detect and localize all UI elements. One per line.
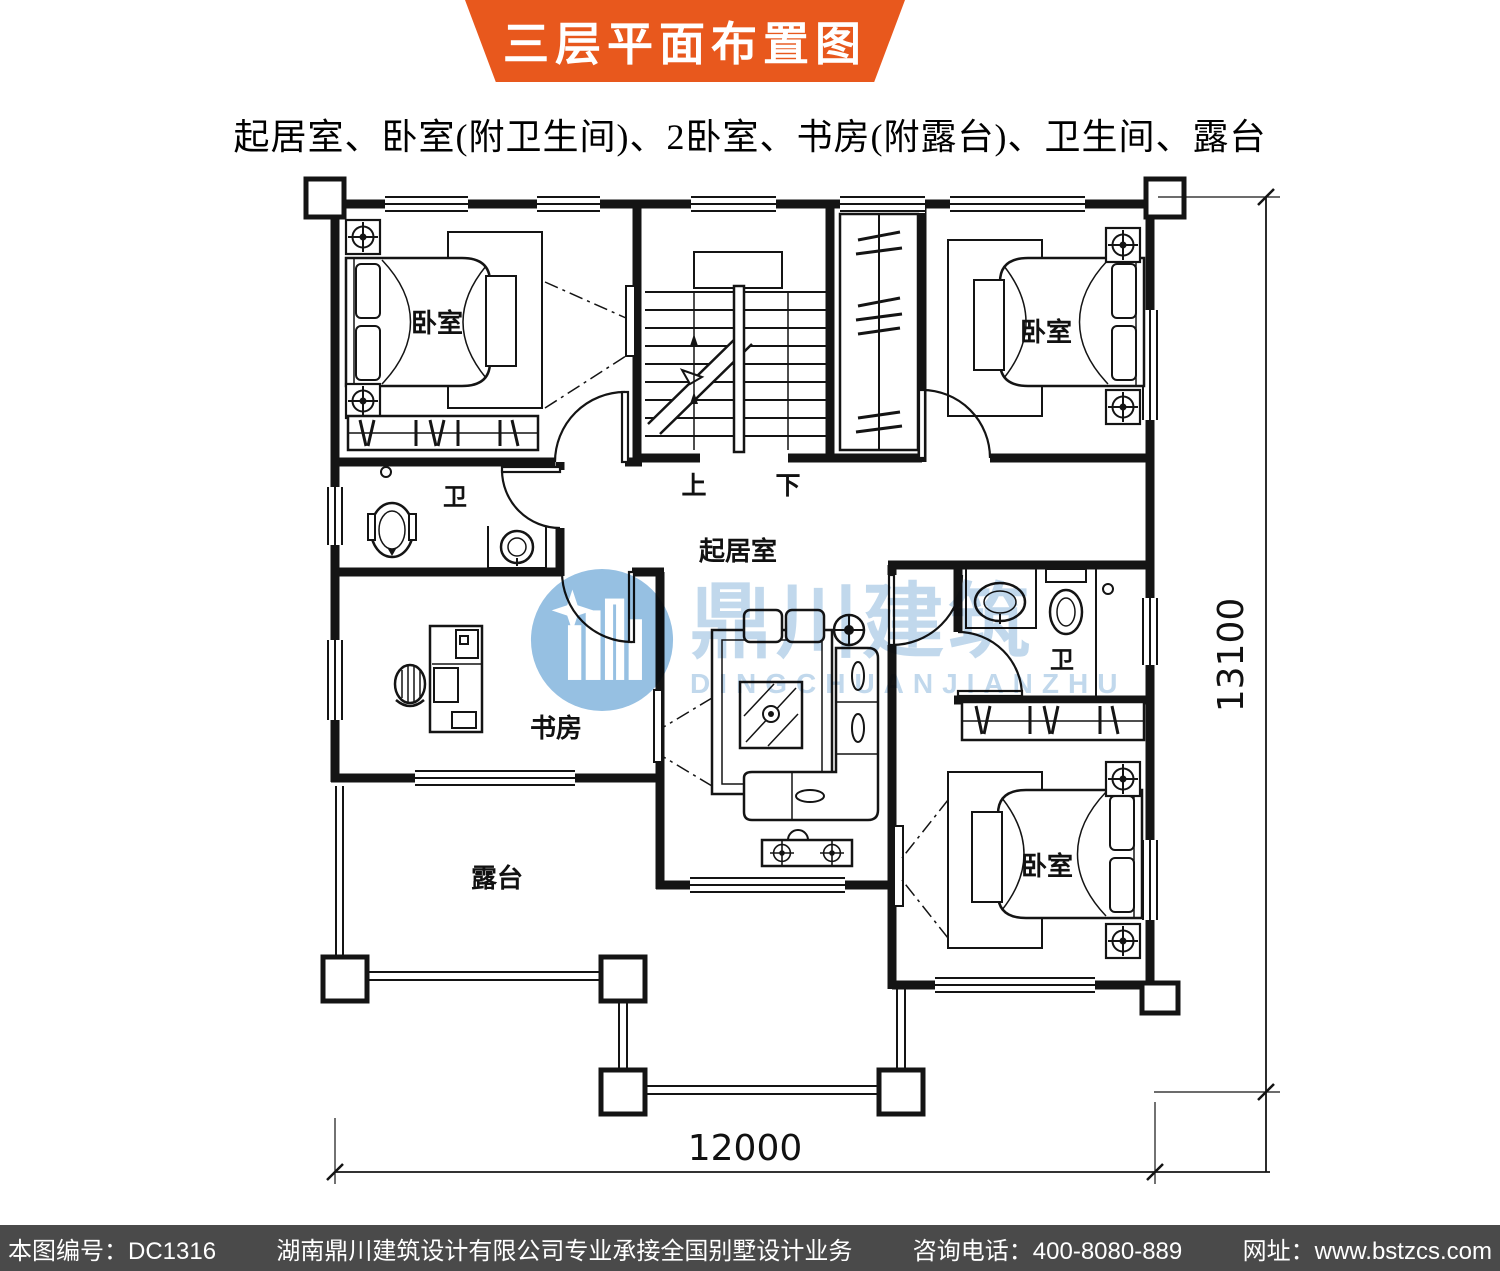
nightstand-icon (1106, 228, 1140, 262)
room-label-bath-right: 卫 (1050, 647, 1074, 674)
dimension-bottom: 12000 (327, 1102, 1270, 1184)
pillow-icon (1110, 858, 1134, 912)
ceiling-lamp-icon (1103, 584, 1113, 594)
nightstand-icon (346, 220, 380, 254)
nightstand-icon (346, 384, 380, 418)
staircase (645, 252, 829, 452)
plant-icon (834, 615, 864, 645)
stair-up-label: 上 (681, 472, 706, 500)
pillow-icon (356, 264, 380, 318)
tv-console-icon (762, 830, 852, 866)
pillow-icon (1112, 264, 1136, 318)
terrace-railing (323, 786, 923, 1114)
tv-icon (626, 286, 635, 356)
wardrobe-icon (962, 702, 1144, 740)
company-line: 湖南鼎川建筑设计有限公司专业承接全国别墅设计业务 (276, 1231, 852, 1266)
armchair-icon (786, 610, 824, 642)
column (601, 1070, 645, 1114)
bench-icon (974, 280, 1004, 370)
toilet-icon (368, 503, 416, 557)
website: 网址：www.bstzcs.com (1243, 1231, 1492, 1266)
column (601, 957, 645, 1001)
column (323, 957, 367, 1001)
room-label-bedroom-tl: 卧室 (411, 308, 463, 338)
study-furniture (395, 626, 482, 732)
room-label-study: 书房 (530, 713, 582, 743)
desk-icon (430, 626, 482, 732)
pillow-icon (356, 326, 380, 380)
room-label-terrace: 露台 (471, 863, 523, 893)
phone: 咨询电话：400-8080-889 (913, 1231, 1182, 1266)
dimension-height-label: 13100 (1211, 598, 1252, 713)
room-label-living: 起居室 (699, 536, 777, 566)
dimension-right: 13100 (1154, 189, 1280, 1172)
floor-plan: 12000 13100 卧室 卧室 卧室 卫 卫 起居室 书房 露台 上 下 (0, 0, 1500, 1271)
tv-icon (654, 690, 662, 762)
closet-icon (840, 214, 918, 450)
pillow-icon (1112, 326, 1136, 380)
nightstand-icon (1106, 390, 1140, 424)
coffee-table-icon (740, 682, 802, 748)
room-label-bath-left: 卫 (443, 484, 467, 511)
bathroom-left-fixtures (368, 462, 546, 568)
bench-icon (486, 276, 516, 366)
ceiling-lamp-icon (381, 467, 391, 477)
wardrobe-icon (348, 416, 538, 450)
stair-down-label: 下 (775, 472, 800, 500)
pillow-icon (1110, 796, 1134, 850)
nightstand-icon (1106, 762, 1140, 796)
living-room-furniture (654, 610, 878, 866)
sink-icon (488, 526, 546, 568)
bedroom-top-left-furniture (346, 220, 635, 450)
bench-icon (972, 812, 1002, 902)
dimension-width-label: 12000 (688, 1128, 803, 1169)
bathroom-right-fixtures (966, 565, 1113, 698)
sink-icon (966, 569, 1036, 628)
page: 三层平面布置图 起居室、卧室(附卫生间)、2卧室、书房(附露台)、卫生间、露台 (0, 0, 1500, 1271)
bedroom-bottom-right-furniture (894, 762, 1142, 958)
toilet-icon (1046, 569, 1086, 634)
room-label-bedroom-br: 卧室 (1021, 851, 1073, 881)
room-label-bedroom-tr: 卧室 (1020, 317, 1072, 347)
column (879, 1070, 923, 1114)
nightstand-icon (1106, 924, 1140, 958)
armchair-icon (744, 610, 782, 642)
drawing-number: 本图编号：DC1316 (8, 1231, 216, 1266)
footer-bar: 本图编号：DC1316 湖南鼎川建筑设计有限公司专业承接全国别墅设计业务 咨询电… (0, 1225, 1500, 1271)
chair-icon (395, 665, 425, 706)
tv-icon (894, 826, 903, 906)
